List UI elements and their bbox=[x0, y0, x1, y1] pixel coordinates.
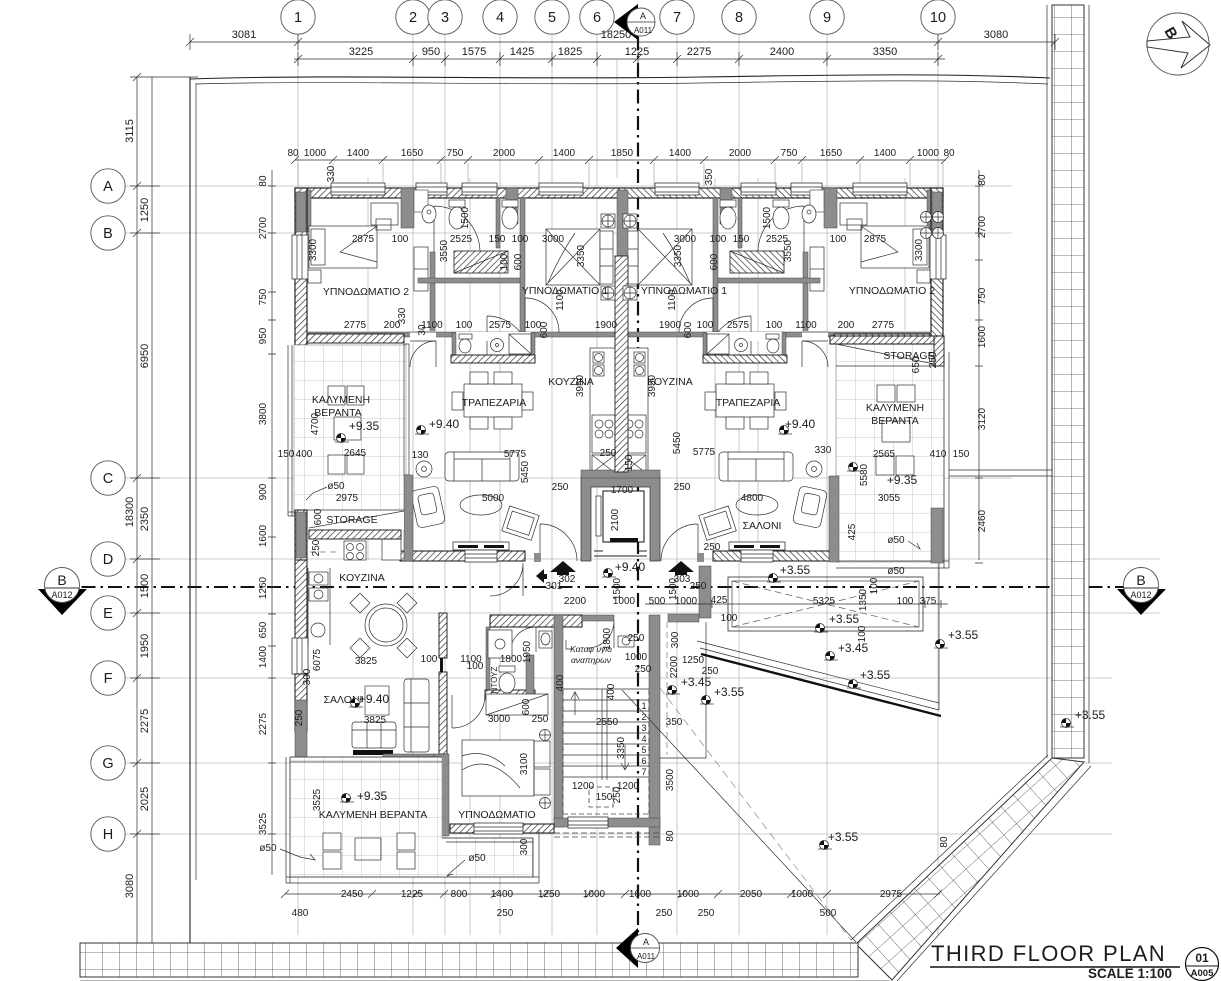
svg-text:2645: 2645 bbox=[344, 448, 367, 459]
svg-text:ΥΠΝΟΔΩΜΑΤΙΟ 2: ΥΠΝΟΔΩΜΑΤΙΟ 2 bbox=[849, 285, 935, 297]
svg-text:1500: 1500 bbox=[460, 206, 471, 229]
svg-text:400: 400 bbox=[555, 674, 566, 691]
svg-text:2550: 2550 bbox=[596, 717, 619, 728]
svg-text:2700: 2700 bbox=[258, 216, 269, 239]
svg-text:80: 80 bbox=[943, 148, 955, 159]
svg-text:+3.55: +3.55 bbox=[828, 830, 859, 844]
svg-text:150: 150 bbox=[624, 454, 635, 471]
svg-text:250: 250 bbox=[311, 539, 322, 556]
svg-text:400: 400 bbox=[606, 683, 617, 700]
svg-text:6950: 6950 bbox=[139, 344, 151, 368]
svg-text:3350: 3350 bbox=[576, 244, 587, 267]
svg-text:10: 10 bbox=[930, 10, 946, 26]
svg-text:100: 100 bbox=[456, 320, 473, 331]
svg-text:1400: 1400 bbox=[258, 645, 269, 668]
svg-text:+9.35: +9.35 bbox=[349, 419, 380, 433]
svg-text:100: 100 bbox=[897, 596, 914, 607]
svg-text:3100: 3100 bbox=[519, 752, 530, 775]
svg-text:2975: 2975 bbox=[336, 493, 359, 504]
svg-text:3055: 3055 bbox=[878, 493, 901, 504]
svg-text:5325: 5325 bbox=[813, 596, 836, 607]
svg-text:C: C bbox=[103, 471, 113, 487]
svg-text:1000: 1000 bbox=[791, 889, 814, 900]
svg-text:150: 150 bbox=[278, 449, 295, 460]
svg-text:2: 2 bbox=[409, 10, 417, 26]
svg-text:2100: 2100 bbox=[610, 508, 621, 531]
svg-text:+3.45: +3.45 bbox=[681, 675, 712, 689]
svg-text:3: 3 bbox=[641, 723, 646, 733]
svg-text:250: 250 bbox=[497, 908, 514, 919]
svg-text:9: 9 bbox=[823, 10, 831, 26]
svg-text:5450: 5450 bbox=[520, 460, 531, 483]
svg-text:80: 80 bbox=[258, 175, 269, 187]
svg-text:7: 7 bbox=[641, 767, 646, 777]
svg-text:350: 350 bbox=[666, 717, 683, 728]
svg-text:150: 150 bbox=[596, 792, 613, 803]
svg-text:3350: 3350 bbox=[873, 46, 897, 58]
svg-text:100: 100 bbox=[467, 661, 484, 672]
svg-text:6: 6 bbox=[641, 756, 646, 766]
svg-text:750: 750 bbox=[447, 148, 464, 159]
svg-text:500: 500 bbox=[649, 596, 666, 607]
svg-text:150: 150 bbox=[489, 234, 506, 245]
svg-text:950: 950 bbox=[258, 327, 269, 344]
svg-text:425: 425 bbox=[847, 523, 858, 540]
svg-text:A011: A011 bbox=[637, 952, 656, 961]
svg-text:2050: 2050 bbox=[740, 889, 763, 900]
svg-text:1000: 1000 bbox=[583, 889, 606, 900]
svg-text:750: 750 bbox=[258, 288, 269, 305]
svg-text:410: 410 bbox=[930, 449, 947, 460]
svg-text:5580: 5580 bbox=[859, 463, 870, 486]
svg-text:ΚΑΛΥΜΕΝΗ ΒΕΡΑΝΤΑ: ΚΑΛΥΜΕΝΗ ΒΕΡΑΝΤΑ bbox=[319, 809, 428, 821]
svg-text:3950: 3950 bbox=[575, 374, 586, 397]
svg-text:3300: 3300 bbox=[308, 238, 319, 261]
svg-text:1950: 1950 bbox=[522, 640, 533, 663]
svg-text:7: 7 bbox=[673, 10, 681, 26]
svg-text:3000: 3000 bbox=[488, 714, 511, 725]
svg-text:5: 5 bbox=[641, 745, 646, 755]
svg-text:3225: 3225 bbox=[349, 46, 373, 58]
svg-text:G: G bbox=[102, 756, 113, 772]
svg-text:1575: 1575 bbox=[462, 46, 486, 58]
svg-text:375: 375 bbox=[920, 596, 937, 607]
svg-text:1000: 1000 bbox=[625, 652, 648, 663]
svg-text:+9.40: +9.40 bbox=[785, 417, 816, 431]
svg-text:2200: 2200 bbox=[669, 655, 680, 678]
svg-text:1500: 1500 bbox=[762, 206, 773, 229]
svg-text:250: 250 bbox=[628, 633, 645, 644]
svg-text:F: F bbox=[104, 671, 113, 687]
svg-text:5000: 5000 bbox=[482, 493, 505, 504]
svg-text:D: D bbox=[103, 552, 113, 568]
svg-text:250: 250 bbox=[635, 664, 652, 675]
svg-text:+3.55: +3.55 bbox=[829, 612, 860, 626]
svg-text:1650: 1650 bbox=[401, 148, 424, 159]
svg-text:2575: 2575 bbox=[489, 320, 512, 331]
svg-text:2575: 2575 bbox=[727, 320, 750, 331]
svg-text:2025: 2025 bbox=[139, 787, 151, 811]
svg-text:6: 6 bbox=[593, 10, 601, 26]
svg-text:+9.40: +9.40 bbox=[615, 560, 646, 574]
svg-text:100: 100 bbox=[421, 654, 438, 665]
svg-text:1600: 1600 bbox=[629, 889, 652, 900]
svg-text:250: 250 bbox=[294, 709, 305, 726]
svg-text:1900: 1900 bbox=[595, 320, 618, 331]
svg-text:18250: 18250 bbox=[601, 29, 632, 41]
svg-text:3080: 3080 bbox=[984, 29, 1008, 41]
svg-text:800: 800 bbox=[451, 889, 468, 900]
svg-text:ΚΑΛΥΜΕΝΗ: ΚΑΛΥΜΕΝΗ bbox=[312, 394, 370, 406]
svg-text:A011: A011 bbox=[634, 26, 653, 35]
svg-text:1100: 1100 bbox=[555, 289, 566, 311]
svg-text:1700: 1700 bbox=[611, 485, 634, 496]
svg-text:950: 950 bbox=[422, 46, 440, 58]
svg-text:2565: 2565 bbox=[873, 449, 896, 460]
svg-text:1250: 1250 bbox=[139, 198, 151, 222]
svg-text:1950: 1950 bbox=[139, 634, 151, 658]
svg-text:1000: 1000 bbox=[677, 889, 700, 900]
svg-text:A012: A012 bbox=[51, 590, 72, 600]
svg-text:E: E bbox=[103, 606, 113, 622]
svg-text:300: 300 bbox=[302, 668, 313, 685]
svg-text:1260: 1260 bbox=[258, 576, 269, 599]
svg-text:4700: 4700 bbox=[310, 412, 321, 435]
svg-text:350: 350 bbox=[704, 168, 715, 185]
svg-text:1200: 1200 bbox=[572, 781, 595, 792]
svg-text:B: B bbox=[103, 226, 113, 242]
svg-text:A005: A005 bbox=[1191, 968, 1214, 979]
svg-text:STORAGE: STORAGE bbox=[326, 514, 377, 526]
svg-text:4: 4 bbox=[496, 10, 504, 26]
svg-text:2875: 2875 bbox=[352, 234, 375, 245]
svg-text:2525: 2525 bbox=[450, 234, 473, 245]
svg-text:ΒΕΡΑΝΤΑ: ΒΕΡΑΝΤΑ bbox=[314, 407, 361, 419]
svg-text:600: 600 bbox=[539, 321, 550, 338]
svg-text:ø50: ø50 bbox=[259, 843, 277, 854]
svg-text:H: H bbox=[103, 827, 113, 843]
svg-text:3080: 3080 bbox=[124, 874, 136, 898]
svg-text:2400: 2400 bbox=[770, 46, 794, 58]
svg-text:250: 250 bbox=[656, 908, 673, 919]
svg-text:330: 330 bbox=[326, 165, 337, 182]
svg-text:900: 900 bbox=[258, 483, 269, 500]
svg-text:1400: 1400 bbox=[874, 148, 897, 159]
svg-text:ø50: ø50 bbox=[887, 535, 905, 546]
svg-text:130: 130 bbox=[412, 450, 429, 461]
svg-text:301: 301 bbox=[546, 581, 563, 592]
svg-text:2: 2 bbox=[641, 712, 646, 722]
svg-text:3525: 3525 bbox=[258, 812, 269, 835]
svg-text:8: 8 bbox=[735, 10, 743, 26]
svg-text:ΤΡΑΠΕΖΑΡΙΑ: ΤΡΑΠΕΖΑΡΙΑ bbox=[462, 397, 527, 409]
svg-text:ø50: ø50 bbox=[327, 481, 345, 492]
svg-text:5775: 5775 bbox=[693, 447, 716, 458]
svg-text:330: 330 bbox=[397, 307, 408, 324]
svg-text:100: 100 bbox=[512, 234, 529, 245]
svg-text:100: 100 bbox=[830, 234, 847, 245]
svg-text:650: 650 bbox=[258, 621, 269, 638]
svg-text:1100: 1100 bbox=[667, 289, 678, 311]
svg-text:3350: 3350 bbox=[616, 736, 627, 759]
svg-text:330: 330 bbox=[815, 445, 832, 456]
svg-text:3: 3 bbox=[441, 10, 449, 26]
svg-text:+9.40: +9.40 bbox=[429, 417, 460, 431]
svg-text:1250: 1250 bbox=[682, 655, 705, 666]
svg-text:1100: 1100 bbox=[795, 320, 817, 331]
svg-text:3550: 3550 bbox=[783, 239, 794, 262]
svg-text:250: 250 bbox=[532, 714, 549, 725]
svg-text:250: 250 bbox=[698, 908, 715, 919]
svg-text:ΚΟΥΖΙΝΑ: ΚΟΥΖΙΝΑ bbox=[339, 572, 384, 584]
svg-text:1000: 1000 bbox=[304, 148, 327, 159]
svg-text:3350: 3350 bbox=[673, 244, 684, 267]
svg-text:1400: 1400 bbox=[553, 148, 576, 159]
svg-text:80: 80 bbox=[665, 830, 676, 842]
svg-text:+9.35: +9.35 bbox=[887, 473, 918, 487]
svg-text:250: 250 bbox=[928, 351, 939, 368]
svg-text:400: 400 bbox=[296, 449, 313, 460]
svg-text:600: 600 bbox=[709, 253, 720, 270]
svg-text:3825: 3825 bbox=[355, 656, 378, 667]
svg-text:4800: 4800 bbox=[741, 493, 764, 504]
svg-text:600: 600 bbox=[521, 698, 532, 715]
svg-text:B: B bbox=[57, 572, 66, 588]
svg-text:1250: 1250 bbox=[538, 889, 561, 900]
svg-text:480: 480 bbox=[292, 908, 309, 919]
svg-text:ΒΕΡΑΝΤΑ: ΒΕΡΑΝΤΑ bbox=[871, 415, 918, 427]
svg-text:+9.40: +9.40 bbox=[359, 692, 390, 706]
svg-text:ΣΑΛΟΝΙ: ΣΑΛΟΝΙ bbox=[743, 520, 782, 532]
svg-text:600: 600 bbox=[313, 508, 324, 525]
svg-text:1400: 1400 bbox=[669, 148, 692, 159]
svg-text:THIRD FLOOR PLAN: THIRD FLOOR PLAN bbox=[931, 941, 1166, 966]
svg-text:A: A bbox=[103, 179, 113, 195]
svg-text:2000: 2000 bbox=[729, 148, 752, 159]
svg-text:+9.35: +9.35 bbox=[357, 789, 388, 803]
svg-text:200: 200 bbox=[838, 320, 855, 331]
svg-text:A: A bbox=[640, 11, 646, 21]
svg-text:ø50: ø50 bbox=[468, 853, 486, 864]
svg-text:250: 250 bbox=[704, 542, 721, 553]
svg-text:+3.55: +3.55 bbox=[714, 685, 745, 699]
svg-text:ΚΑΛΥΜΕΝΗ: ΚΑΛΥΜΕΝΗ bbox=[866, 402, 924, 414]
svg-text:2275: 2275 bbox=[139, 709, 151, 733]
svg-text:5775: 5775 bbox=[504, 449, 527, 460]
svg-text:3081: 3081 bbox=[232, 29, 256, 41]
svg-text:1: 1 bbox=[641, 701, 646, 711]
svg-text:150: 150 bbox=[733, 234, 750, 245]
svg-text:5450: 5450 bbox=[672, 431, 683, 454]
svg-text:18300: 18300 bbox=[124, 497, 136, 528]
svg-text:3825: 3825 bbox=[364, 715, 387, 726]
svg-text:ø50: ø50 bbox=[887, 566, 905, 577]
svg-text:600: 600 bbox=[513, 253, 524, 270]
svg-text:2450: 2450 bbox=[341, 889, 364, 900]
svg-text:2350: 2350 bbox=[139, 507, 151, 531]
svg-text:303: 303 bbox=[674, 574, 691, 585]
svg-text:αναπηρων: αναπηρων bbox=[571, 655, 612, 665]
svg-text:100: 100 bbox=[697, 320, 714, 331]
svg-text:100: 100 bbox=[392, 234, 409, 245]
svg-text:1225: 1225 bbox=[401, 889, 424, 900]
svg-text:ΚΟΥΖΙΝΑ: ΚΟΥΖΙΝΑ bbox=[548, 376, 593, 388]
svg-text:250: 250 bbox=[552, 482, 569, 493]
svg-text:5: 5 bbox=[548, 10, 556, 26]
svg-text:SCALE 1:100: SCALE 1:100 bbox=[1088, 966, 1172, 981]
svg-text:1800: 1800 bbox=[500, 654, 523, 665]
svg-text:3525: 3525 bbox=[312, 788, 323, 811]
svg-text:650: 650 bbox=[911, 356, 922, 373]
svg-text:2000: 2000 bbox=[493, 148, 516, 159]
svg-text:250: 250 bbox=[612, 786, 623, 803]
svg-text:1600: 1600 bbox=[258, 524, 269, 547]
svg-text:+3.55: +3.55 bbox=[1075, 708, 1106, 722]
svg-text:100: 100 bbox=[857, 625, 868, 642]
svg-text:2200: 2200 bbox=[564, 596, 587, 607]
svg-text:250: 250 bbox=[702, 666, 719, 677]
svg-text:1000: 1000 bbox=[917, 148, 940, 159]
svg-text:1225: 1225 bbox=[625, 46, 649, 58]
svg-text:150: 150 bbox=[953, 449, 970, 460]
svg-text:250: 250 bbox=[690, 581, 707, 592]
svg-text:300: 300 bbox=[519, 838, 530, 855]
svg-text:3000: 3000 bbox=[542, 234, 565, 245]
svg-text:100: 100 bbox=[869, 577, 880, 594]
svg-text:01: 01 bbox=[1195, 951, 1209, 965]
svg-text:3550: 3550 bbox=[439, 239, 450, 262]
svg-text:ΥΠΝΟΔΩΜΑΤΙΟ 1: ΥΠΝΟΔΩΜΑΤΙΟ 1 bbox=[641, 285, 727, 297]
svg-text:100: 100 bbox=[766, 320, 783, 331]
svg-text:+3.55: +3.55 bbox=[780, 563, 811, 577]
svg-text:ΤΡΑΠΕΖΑΡΙΑ: ΤΡΑΠΕΖΑΡΙΑ bbox=[716, 397, 781, 409]
svg-text:1400: 1400 bbox=[491, 889, 514, 900]
svg-text:100: 100 bbox=[499, 253, 510, 270]
svg-text:1500: 1500 bbox=[612, 577, 623, 600]
svg-text:ΥΠΝΟΔΩΜΑΤΙΟ 2: ΥΠΝΟΔΩΜΑΤΙΟ 2 bbox=[323, 286, 409, 298]
svg-text:ΝΤΟΥΖ: ΝΤΟΥΖ bbox=[490, 667, 499, 694]
svg-text:3800: 3800 bbox=[258, 402, 269, 425]
svg-text:100: 100 bbox=[710, 234, 727, 245]
svg-text:1850: 1850 bbox=[611, 148, 634, 159]
svg-text:3000: 3000 bbox=[674, 234, 697, 245]
svg-text:30: 30 bbox=[417, 324, 428, 336]
svg-text:1425: 1425 bbox=[510, 46, 534, 58]
svg-text:750: 750 bbox=[781, 148, 798, 159]
svg-text:STORAGE: STORAGE bbox=[883, 350, 934, 362]
svg-text:2275: 2275 bbox=[687, 46, 711, 58]
svg-text:4: 4 bbox=[641, 734, 646, 744]
svg-text:2975: 2975 bbox=[880, 889, 903, 900]
svg-text:1: 1 bbox=[294, 10, 302, 26]
svg-text:250: 250 bbox=[674, 482, 691, 493]
svg-text:100: 100 bbox=[721, 613, 738, 624]
svg-text:2275: 2275 bbox=[258, 712, 269, 735]
svg-text:1500: 1500 bbox=[139, 574, 151, 598]
svg-text:ΥΠΝΟΔΩΜΑΤΙΟ: ΥΠΝΟΔΩΜΑΤΙΟ bbox=[458, 809, 535, 821]
svg-text:80: 80 bbox=[939, 836, 950, 848]
svg-text:1400: 1400 bbox=[347, 148, 370, 159]
svg-text:6075: 6075 bbox=[312, 648, 323, 671]
svg-text:600: 600 bbox=[683, 321, 694, 338]
svg-text:250: 250 bbox=[600, 448, 617, 459]
svg-text:80: 80 bbox=[287, 148, 299, 159]
svg-text:A: A bbox=[643, 937, 649, 947]
svg-text:1350: 1350 bbox=[858, 588, 869, 611]
svg-text:B: B bbox=[1136, 572, 1145, 588]
svg-text:1900: 1900 bbox=[659, 320, 682, 331]
svg-text:A012: A012 bbox=[1130, 590, 1151, 600]
svg-text:2775: 2775 bbox=[344, 320, 367, 331]
svg-text:3500: 3500 bbox=[665, 768, 676, 791]
svg-text:2775: 2775 bbox=[872, 320, 895, 331]
svg-text:300: 300 bbox=[670, 631, 681, 648]
svg-text:2875: 2875 bbox=[864, 234, 887, 245]
svg-text:+3.55: +3.55 bbox=[860, 668, 891, 682]
svg-text:3115: 3115 bbox=[124, 119, 136, 143]
svg-text:3300: 3300 bbox=[914, 238, 925, 261]
svg-text:1825: 1825 bbox=[558, 46, 582, 58]
svg-text:1800: 1800 bbox=[602, 627, 613, 650]
svg-text:1650: 1650 bbox=[820, 148, 843, 159]
svg-text:+3.55: +3.55 bbox=[948, 628, 979, 642]
svg-text:3950: 3950 bbox=[647, 374, 658, 397]
